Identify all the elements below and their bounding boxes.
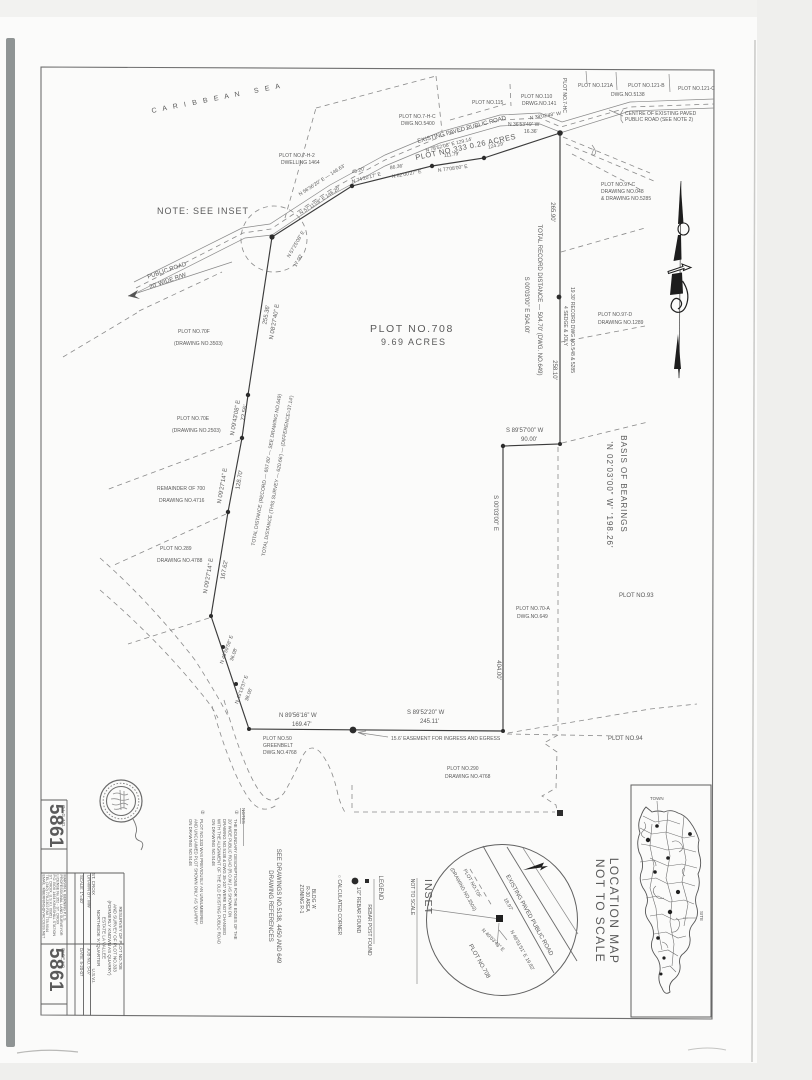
svg-text:WITH THE ALIGNMENT OF THE OLD: WITH THE ALIGNMENT OF THE OLD EXISTING P… <box>217 819 222 944</box>
svg-text:258.10': 258.10' <box>551 360 557 380</box>
svg-text:DRAWING NO.5138 & DWG 35-107 W: DRAWING NO.5138 & DWG 35-107 WERE NOT CH… <box>222 819 227 935</box>
svg-text:DRAWN BY: MW: DRAWN BY: MW <box>87 875 92 909</box>
svg-text:NOT TO SCALE: NOT TO SCALE <box>593 859 607 963</box>
svg-text:9.69 ACRES: 9.69 ACRES <box>381 337 447 347</box>
svg-text:245.11': 245.11' <box>420 719 439 725</box>
svg-text:PLOT NO.121-C: PLOT NO.121-C <box>678 86 715 92</box>
svg-text:PLOT NO.97-D: PLOT NO.97-D <box>598 312 632 318</box>
svg-text:SEE DRAWINGS NO.5138, 4450 AND: SEE DRAWINGS NO.5138, 4450 AND 649 <box>275 849 281 964</box>
svg-text:DRAWING REFERENCES: DRAWING REFERENCES <box>267 870 273 941</box>
svg-text:PLOT NO.70E: PLOT NO.70E <box>177 416 210 422</box>
svg-text:16.36': 16.36' <box>524 129 538 135</box>
svg-text:LEGEND: LEGEND <box>377 876 383 901</box>
svg-text:S 89'52'20” W: S 89'52'20” W <box>407 710 445 716</box>
svg-text:DWELLING 1464: DWELLING 1464 <box>281 160 320 166</box>
svg-text:PLOT NO.7-H-C: PLOT NO.7-H-C <box>399 114 436 120</box>
svg-text:DRAWING NO.4716: DRAWING NO.4716 <box>159 498 205 504</box>
svg-text:SCALE: 1”=40': SCALE: 1”=40' <box>79 875 84 904</box>
svg-text:PLOT NO.121-B: PLOT NO.121-B <box>628 83 665 89</box>
svg-text:PLOT NO.708: PLOT NO.708 <box>370 323 454 335</box>
svg-text:PLOT NO.333 WAS PREVIOUSLY AN: PLOT NO.333 WAS PREVIOUSLY AN UNNUMBERED <box>199 819 204 924</box>
svg-text:4 SEDGE & JOLY: 4 SEDGE & JOLY <box>562 306 568 347</box>
svg-text:169.47': 169.47' <box>292 722 312 728</box>
svg-text:REMAINDER OF 700: REMAINDER OF 700 <box>157 486 205 492</box>
svg-text:S 89'57'00” W: S 89'57'00” W <box>506 428 544 434</box>
svg-text:GREENBELT: GREENBELT <box>263 743 293 749</box>
svg-text:RESURVEY OF PLOT NO.708: RESURVEY OF PLOT NO.708 <box>118 906 123 970</box>
svg-text:NOT TO SCALE: NOT TO SCALE <box>409 879 415 916</box>
svg-text:THE BOUNDARY DESCRIPTIONS FOR: THE BOUNDARY DESCRIPTIONS FOR THE EDGES … <box>233 819 238 940</box>
svg-text:19.30' RECORD DWG NO.548 & 528: 19.30' RECORD DWG NO.548 & 5285 <box>569 287 575 373</box>
svg-text:& DRAWING NO.5285: & DRAWING NO.5285 <box>601 196 651 202</box>
svg-text:SITE: SITE <box>699 911 704 921</box>
svg-text:①: ① <box>233 810 239 815</box>
svg-text:N 89'56'16” W: N 89'56'16” W <box>279 713 317 719</box>
svg-text:PLOT NO.7-H-2: PLOT NO.7-H-2 <box>279 153 315 159</box>
svg-text:PLOT NO.7-HC: PLOT NO.7-HC <box>561 78 567 113</box>
svg-text:DRAWING NO.4768: DRAWING NO.4768 <box>445 774 491 780</box>
svg-text:PLOT NO.115: PLOT NO.115 <box>472 100 503 106</box>
svg-text:ESTATE LA VALLEE: ESTATE LA VALLEE <box>102 917 107 959</box>
svg-text:DRAWING NO.4788: DRAWING NO.4788 <box>157 558 203 564</box>
svg-text:U.S.V.I.: U.S.V.I. <box>91 968 96 983</box>
svg-text:PLOT NO.97-C: PLOT NO.97-C <box>601 182 635 188</box>
svg-text:1/2” REBAR FOUND: 1/2” REBAR FOUND <box>355 887 361 934</box>
svg-text:S 00'03'00” E: S 00'03'00” E <box>492 495 498 531</box>
svg-text:ZONING R-1: ZONING R-1 <box>298 885 304 914</box>
svg-text:5861: 5861 <box>45 948 66 992</box>
svg-text:TOTAL RECORD DISTANCE — 504.70: TOTAL RECORD DISTANCE — 504.70' (DWG. NO… <box>536 225 542 376</box>
svg-text:404.00': 404.00' <box>495 660 501 680</box>
svg-text:DWG.NO.649: DWG.NO.649 <box>517 614 548 620</box>
svg-text:PLOT NO.93: PLOT NO.93 <box>619 593 654 599</box>
svg-text:PLOT NO.94: PLOT NO.94 <box>608 736 643 742</box>
svg-text:S 00'03'00” E 504.00': S 00'03'00” E 504.00' <box>523 277 529 334</box>
svg-text:(DRAWING NO.2503): (DRAWING NO.2503) <box>172 428 221 434</box>
svg-text:DRAWING NO.1289: DRAWING NO.1289 <box>598 320 644 326</box>
svg-text:DWG.NO.4768: DWG.NO.4768 <box>263 750 297 756</box>
svg-text:BLDG 'A': BLDG 'A' <box>310 889 316 909</box>
svg-text:DWG.NO.5138: DWG.NO.5138 <box>611 92 645 98</box>
svg-text:(DRAWING NO.3503): (DRAWING NO.3503) <box>174 341 223 347</box>
svg-text:REBAR POST FOUND: REBAR POST FOUND <box>366 904 372 956</box>
svg-text:②: ② <box>199 810 205 815</box>
svg-text:JOB NO. 5-07: JOB NO. 5-07 <box>87 948 92 976</box>
svg-text:90.00': 90.00' <box>521 437 537 443</box>
svg-text:ST. CROIX: ST. CROIX <box>91 873 96 895</box>
svg-text:N 36'53'49” W: N 36'53'49” W <box>508 122 540 128</box>
svg-text:○ CALCULATED CORNER: ○ CALCULATED CORNER <box>336 875 342 936</box>
svg-text:EMAIL: MBERNING@VIACCESS.NET: EMAIL: MBERNING@VIACCESS.NET <box>42 875 46 940</box>
svg-text:NOTE: SEE INSET: NOTE: SEE INSET <box>157 206 249 216</box>
svg-text:PUBLIC ROAD (SEE NOTE 2): PUBLIC ROAD (SEE NOTE 2) <box>625 117 693 123</box>
svg-text:PLOT NO.70F: PLOT NO.70F <box>178 329 210 335</box>
svg-text:DRAWING NO.048: DRAWING NO.048 <box>601 189 644 195</box>
svg-text:5861: 5861 <box>45 804 66 848</box>
svg-text:AND SURVEY OF PLOT NO.333: AND SURVEY OF PLOT NO.333 <box>113 904 118 972</box>
svg-text:PLOT NO.110: PLOT NO.110 <box>521 94 552 100</box>
svg-text:PLOT NO.290: PLOT NO.290 <box>447 766 479 772</box>
svg-text:ON DRAWING NO.5148: ON DRAWING NO.5148 <box>188 819 193 866</box>
svg-text:R-30 AREA: R-30 AREA <box>304 886 310 912</box>
svg-text:NORTHSIDE 'A' QUARTER: NORTHSIDE 'A' QUARTER <box>96 910 101 967</box>
svg-text:LOCATION MAP: LOCATION MAP <box>607 858 621 965</box>
svg-text:DATE: 5-20-07: DATE: 5-20-07 <box>79 948 84 977</box>
svg-text:20' WIDE PUBLIC ROAD (R.O.W.): 20' WIDE PUBLIC ROAD (R.O.W.) AS SHOWN O… <box>228 819 233 917</box>
svg-text:INSET: INSET <box>422 879 434 915</box>
svg-text:TOWN: TOWN <box>650 796 664 801</box>
svg-text:PLOT NO.289: PLOT NO.289 <box>160 546 192 552</box>
svg-text:ON DRAWING NO.5148: ON DRAWING NO.5148 <box>211 819 216 866</box>
svg-text:'N 02'03'00” W' '198.26': 'N 02'03'00” W' '198.26' <box>605 442 614 549</box>
svg-text:(FORMERLY KNOWN AS QUARRY): (FORMERLY KNOWN AS QUARRY) <box>107 900 112 976</box>
svg-text:AND UNCLAIMED PLOT SHOWN ONLY: AND UNCLAIMED PLOT SHOWN ONLY AS 'QUARRY… <box>194 819 199 925</box>
svg-text:PLOT NO.121A: PLOT NO.121A <box>578 83 614 89</box>
svg-text:265.90': 265.90' <box>549 202 555 222</box>
svg-text:15.6' EASEMENT FOR INGRESS AND: 15.6' EASEMENT FOR INGRESS AND EGRESS <box>391 736 501 742</box>
svg-text:PLOT NO.70-A: PLOT NO.70-A <box>516 606 550 612</box>
svg-text:DWG.NO.5400: DWG.NO.5400 <box>401 121 435 127</box>
svg-text:DRWG.NO.141: DRWG.NO.141 <box>522 101 557 107</box>
svg-text:PLOT NO.50: PLOT NO.50 <box>263 736 292 742</box>
svg-text:BASIS OF BEARINGS: BASIS OF BEARINGS <box>619 435 628 532</box>
